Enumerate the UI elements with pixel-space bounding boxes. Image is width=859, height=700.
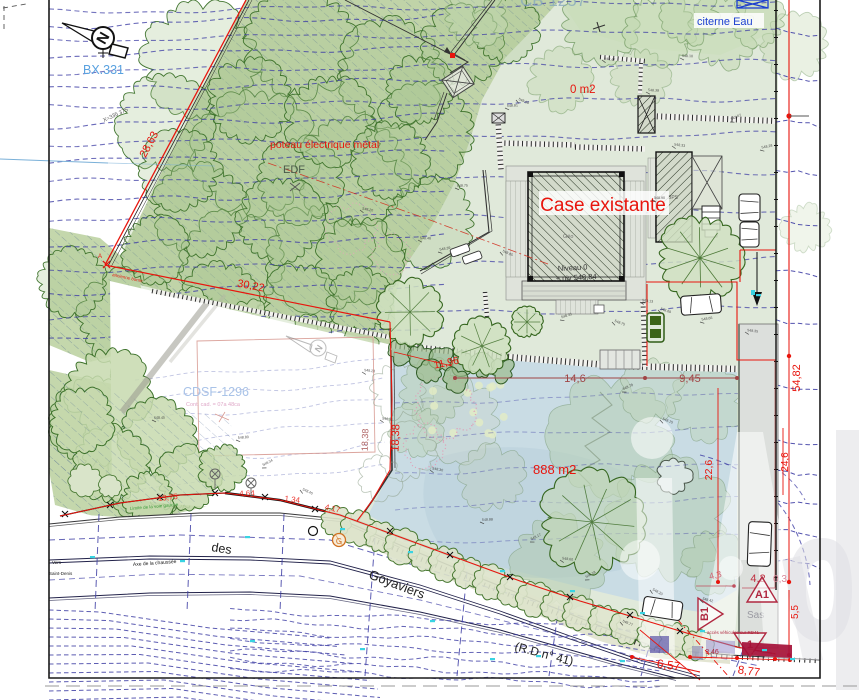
svg-text:Saint-Denis: Saint-Denis <box>49 571 73 576</box>
svg-text:A1: A1 <box>755 589 769 601</box>
svg-text:BPS: BPS <box>668 195 679 201</box>
svg-text:0,75: 0,75 <box>772 650 786 657</box>
svg-text:24,6: 24,6 <box>780 452 791 472</box>
svg-text:9,45: 9,45 <box>679 373 700 385</box>
svg-text:0 m2: 0 m2 <box>570 84 596 96</box>
svg-text:548.45: 548.45 <box>154 416 165 420</box>
svg-text:18,38: 18,38 <box>390 424 403 452</box>
svg-text:Vers: Vers <box>52 560 62 565</box>
svg-text:548.75: 548.75 <box>457 184 468 188</box>
svg-text:A: A <box>98 254 102 260</box>
svg-text:548.88: 548.88 <box>482 518 493 522</box>
svg-text:Niveau 0: Niveau 0 <box>558 262 588 273</box>
svg-text:5,5: 5,5 <box>790 605 801 619</box>
svg-text:22,6: 22,6 <box>703 460 715 481</box>
svg-text:0,3: 0,3 <box>773 574 787 585</box>
svg-text:EDF: EDF <box>283 164 305 176</box>
svg-text:548.10: 548.10 <box>682 54 693 58</box>
svg-text:548.80: 548.80 <box>238 435 249 440</box>
svg-text:Case existante: Case existante <box>540 195 666 216</box>
svg-text:G: G <box>336 537 342 546</box>
svg-text:poteau électrique métal: poteau électrique métal <box>270 139 379 151</box>
svg-text:888 m2: 888 m2 <box>533 462 576 477</box>
svg-text:Cont. cad. = 07a 48ca: Cont. cad. = 07a 48ca <box>186 402 241 408</box>
svg-text:accès véhicules sur RD41: accès véhicules sur RD41 <box>707 630 760 635</box>
svg-text:CDSF-1296: CDSF-1296 <box>183 385 249 399</box>
svg-text:4,64: 4,64 <box>239 489 255 499</box>
svg-text:18,38: 18,38 <box>360 428 371 451</box>
svg-text:CB 1257: CB 1257 <box>520 0 586 10</box>
svg-text:548.90: 548.90 <box>654 196 665 200</box>
svg-text:B1: B1 <box>699 607 711 621</box>
svg-text:BX.331: BX.331 <box>83 63 124 77</box>
svg-text:548.81: 548.81 <box>507 104 518 108</box>
svg-text:548.39: 548.39 <box>648 88 659 93</box>
svg-text:Géo: Géo <box>563 234 573 240</box>
svg-text:548.46: 548.46 <box>420 236 431 240</box>
svg-text:54,82: 54,82 <box>791 364 803 392</box>
svg-text:5: 5 <box>750 650 754 657</box>
svg-text:14,6: 14,6 <box>564 373 585 385</box>
svg-text:citerne Eau: citerne Eau <box>697 16 753 28</box>
